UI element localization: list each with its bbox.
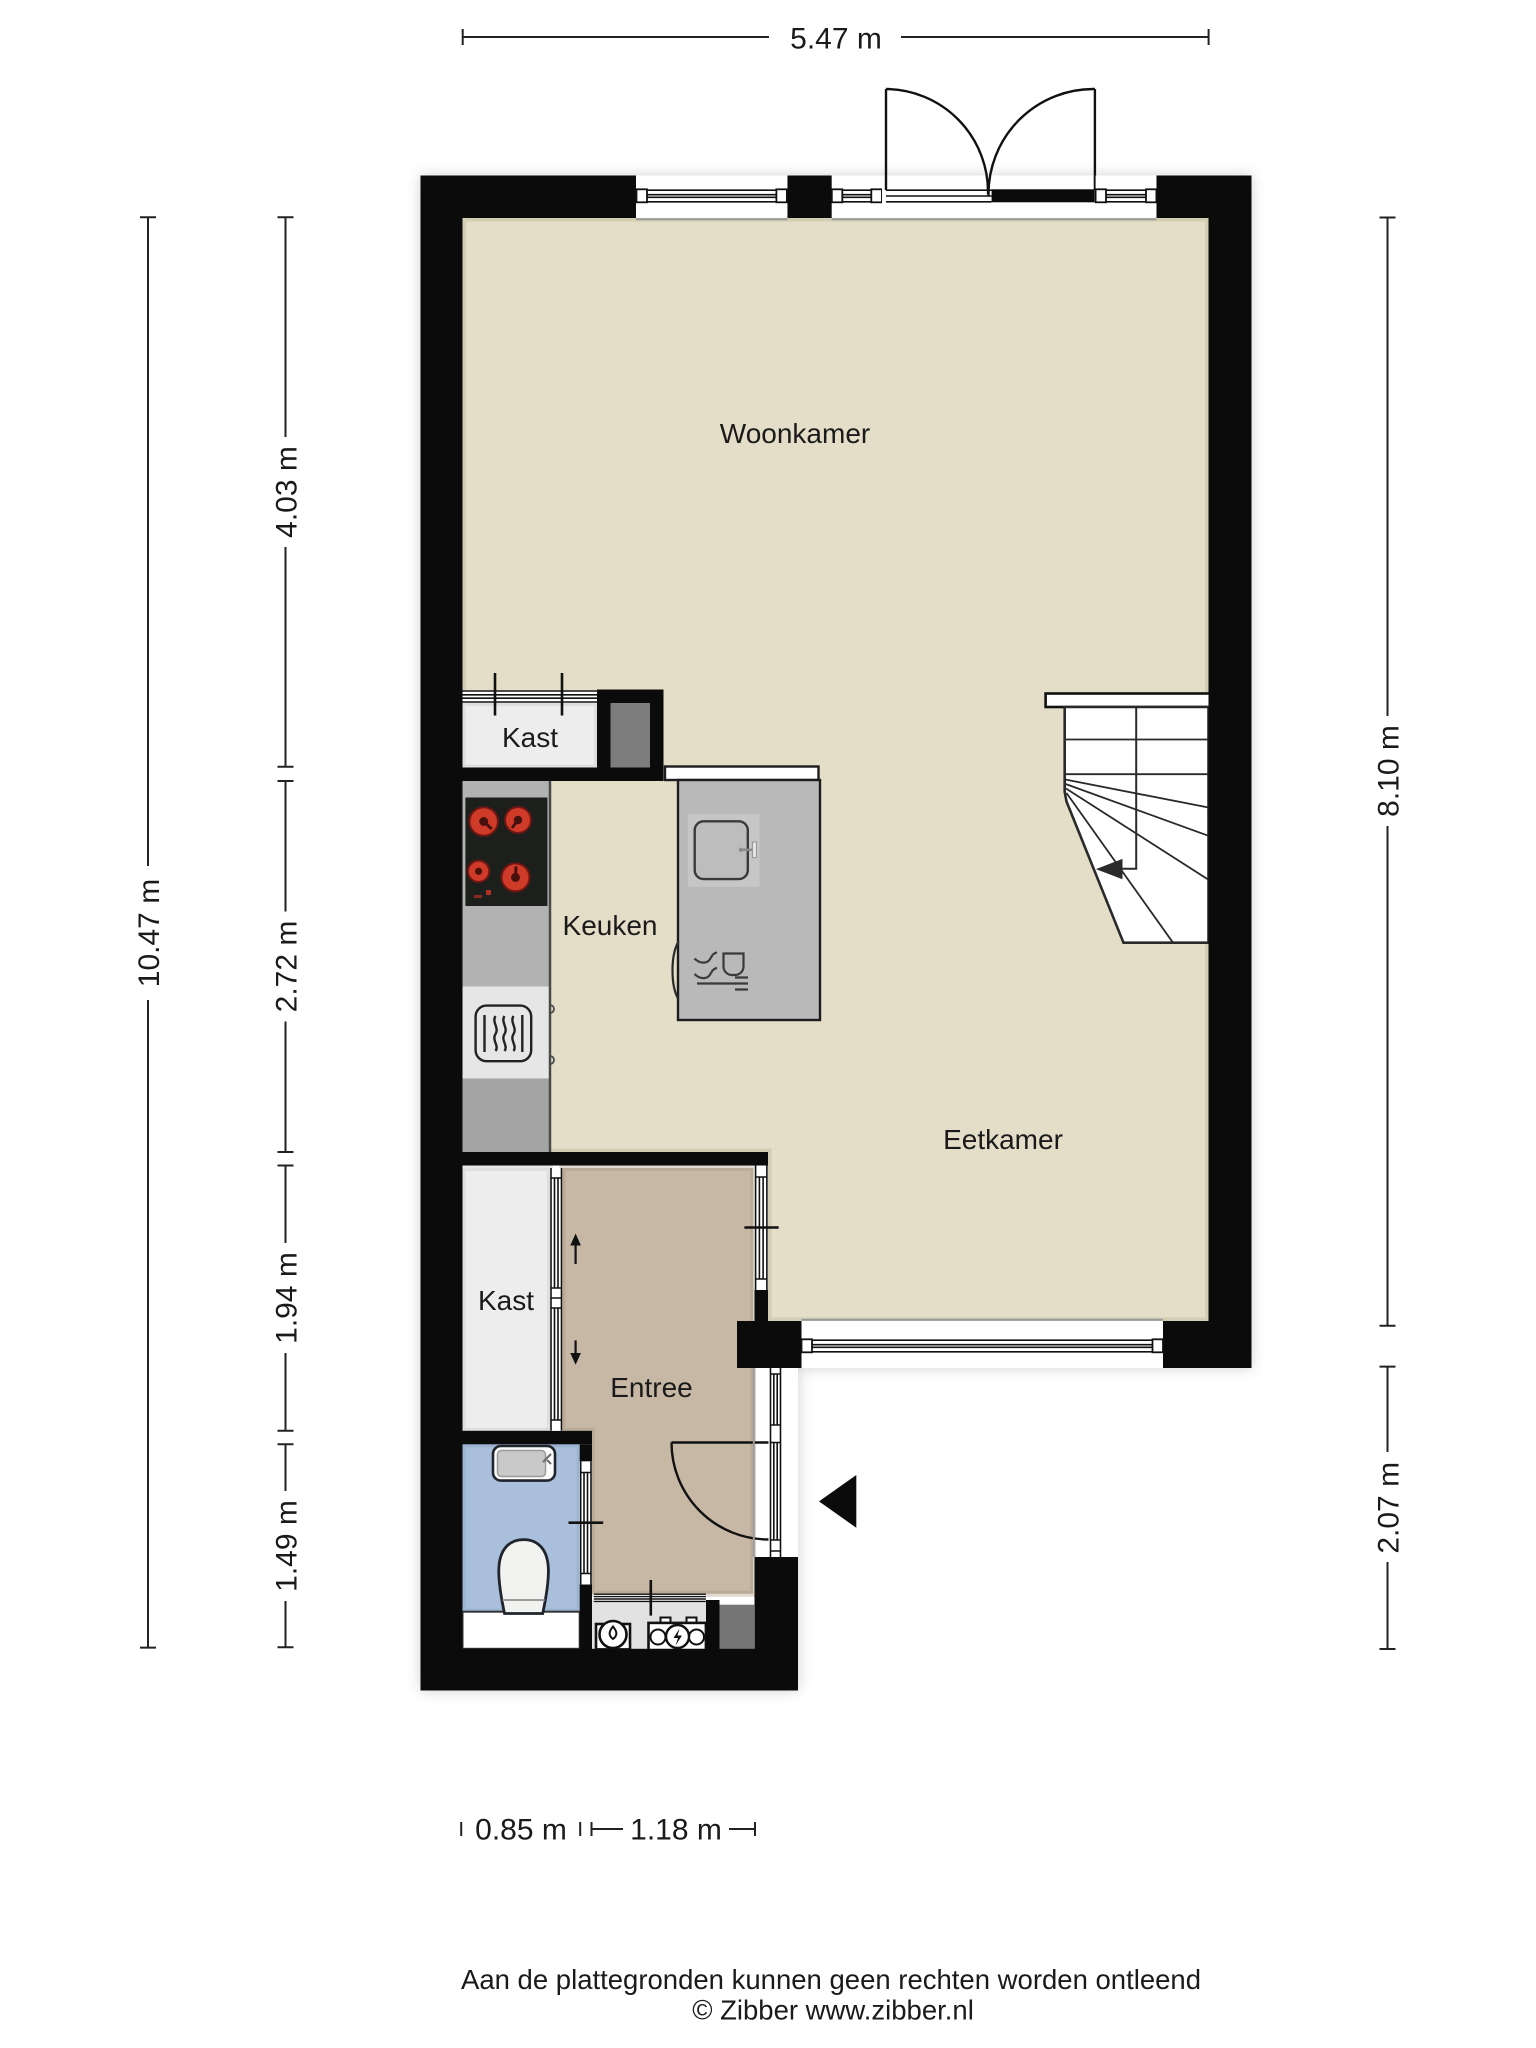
svg-text:5.47 m: 5.47 m [790, 23, 882, 56]
svg-text:4.03 m: 4.03 m [271, 446, 304, 538]
svg-text:Keuken: Keuken [563, 910, 658, 941]
svg-text:2.72 m: 2.72 m [271, 921, 304, 1013]
svg-text:0.85 m: 0.85 m [475, 1814, 567, 1847]
svg-text:© Zibber www.zibber.nl: © Zibber www.zibber.nl [692, 1995, 974, 2026]
svg-text:Aan de plattegronden kunnen ge: Aan de plattegronden kunnen geen rechten… [461, 1964, 1201, 1995]
svg-text:Kast: Kast [502, 722, 558, 753]
svg-text:Eetkamer: Eetkamer [943, 1124, 1063, 1155]
svg-text:Entree: Entree [610, 1372, 693, 1403]
svg-text:1.49 m: 1.49 m [271, 1500, 304, 1592]
svg-text:8.10 m: 8.10 m [1373, 725, 1406, 817]
svg-text:Woonkamer: Woonkamer [720, 418, 870, 449]
svg-text:Kast: Kast [478, 1285, 534, 1316]
svg-text:1.94 m: 1.94 m [271, 1252, 304, 1344]
svg-text:2.07 m: 2.07 m [1373, 1462, 1406, 1554]
svg-text:1.18 m: 1.18 m [630, 1814, 722, 1847]
svg-text:10.47 m: 10.47 m [133, 879, 166, 987]
